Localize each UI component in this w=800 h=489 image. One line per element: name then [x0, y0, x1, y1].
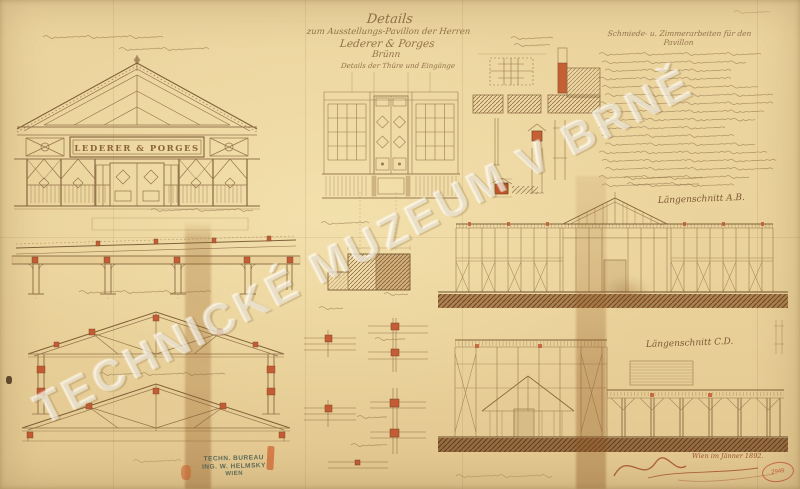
pencil-number-note	[733, 8, 775, 20]
title-line-4: Brünn	[298, 50, 475, 60]
archive-stamp-number: 2949	[771, 468, 785, 476]
title-line-2: zum Ausstellungs-Pavillon der Herren	[300, 28, 477, 38]
title-line-3: Lederer & Porges	[299, 38, 476, 50]
timber-joint-details-drawing	[298, 192, 436, 474]
bureau-stamp: TECHN. BUREAU ING. W. HELMSKY WIEN	[196, 454, 273, 480]
truss-sections-drawing	[8, 296, 304, 444]
signature: Wien im Jänner 1892.	[608, 444, 783, 484]
longitudinal-section-ab: Längenschnitt A.B.	[432, 178, 794, 312]
title-line-1: Details	[301, 13, 479, 28]
scale-note	[132, 457, 190, 469]
drawing-sheet: Details zum Ausstellungs-Pavillon der He…	[0, 0, 800, 489]
section-label-cd: Längenschnitt C.D.	[645, 337, 734, 350]
title-block: Details zum Ausstellungs-Pavillon der He…	[298, 13, 479, 60]
facade-sign-text: LEDERER & PORGES	[74, 144, 199, 154]
handwritten-note	[42, 33, 177, 45]
section-label-ab: Längenschnitt A.B.	[657, 193, 746, 206]
facade-elevation-drawing: LEDERER & PORGES	[14, 53, 260, 211]
aisle-section-drawing	[8, 198, 304, 302]
spec-heading: Schmiede- u. Zimmerarbeiten für den Pavi…	[593, 30, 765, 47]
signature-date: Wien im Jänner 1892.	[692, 452, 764, 460]
handwritten-note	[455, 472, 565, 484]
spec-text-lines	[598, 50, 778, 196]
door-detail-caption: Details der Thüre und Eingänge	[322, 62, 475, 70]
